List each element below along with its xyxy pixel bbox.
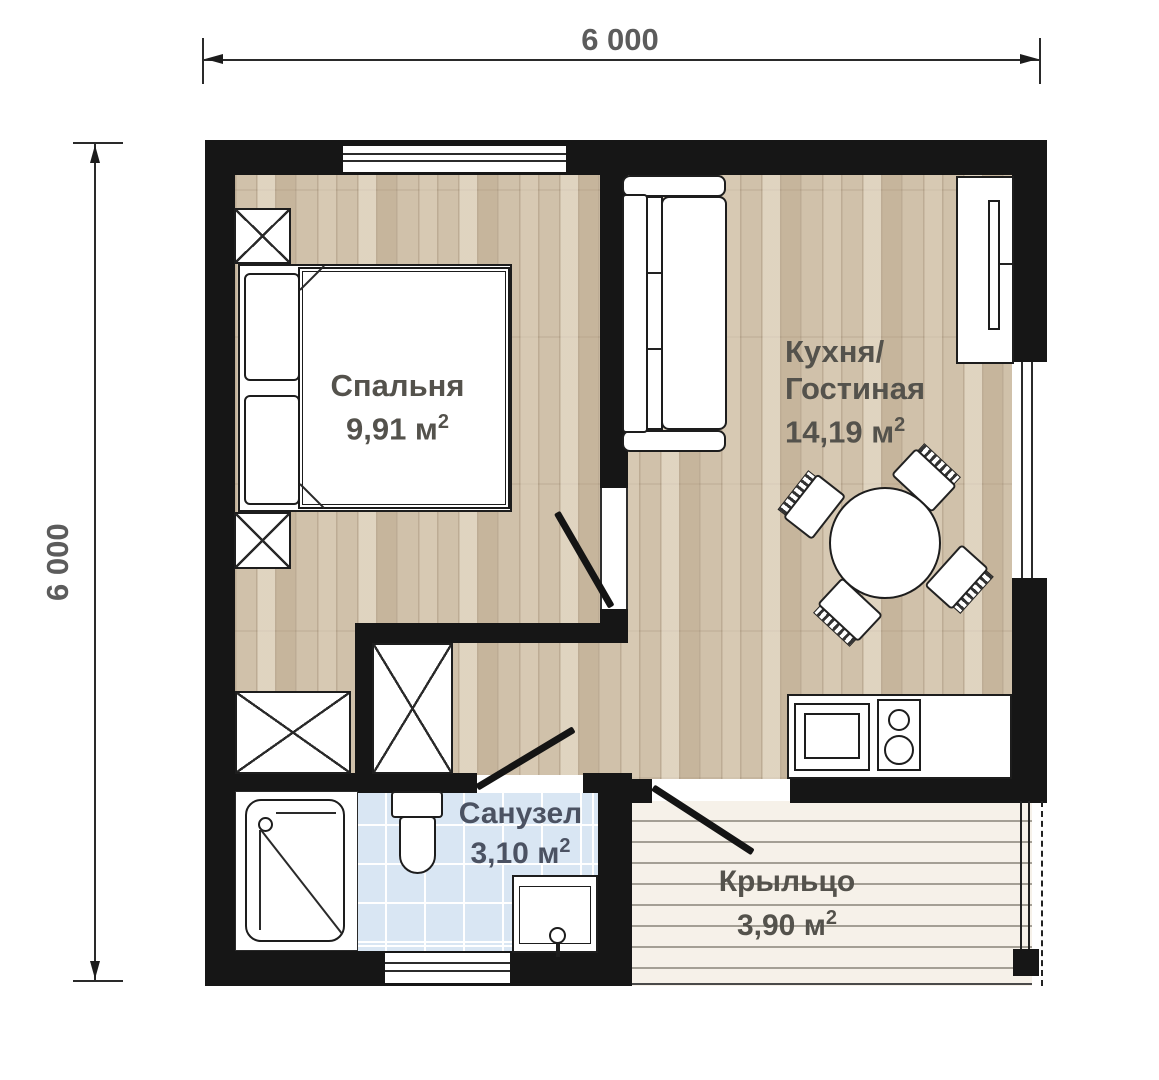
sofa-seat <box>661 196 727 430</box>
cooktop-burner-small <box>888 709 910 731</box>
porch-rail-double-line <box>1020 801 1030 951</box>
window-right-line-1 <box>1021 362 1023 578</box>
bathroom-label: Санузел 3,10 м2 <box>438 797 603 870</box>
porch-area: 3,90 м2 <box>698 900 876 944</box>
sofa-cushion-divider-1 <box>648 272 661 274</box>
tv-bracket <box>1000 263 1012 265</box>
dimension-top-arrow-left <box>205 54 223 64</box>
bedroom-area: 9,91 м2 <box>280 404 515 447</box>
sink-vanity <box>512 875 598 953</box>
bedroom-wardrobe <box>235 691 351 774</box>
sink-faucet-stem <box>556 943 560 957</box>
dimension-top-tick-left <box>202 38 204 84</box>
cooktop-burner-large <box>884 735 914 765</box>
sofa-backrest <box>622 194 648 433</box>
microwave <box>794 703 870 771</box>
bathroom-area: 3,10 м2 <box>438 830 603 870</box>
toilet-tank <box>391 791 443 818</box>
porch-post <box>1013 949 1039 976</box>
dimension-top-line <box>203 59 1040 61</box>
floor-plan-canvas: Спальня 9,91 м2 Кухня/ Гостиная 14,19 м2… <box>0 0 1159 1080</box>
sofa-armrest-bottom <box>622 430 726 452</box>
microwave-window <box>804 713 860 759</box>
sofa-cushion-divider-2 <box>648 348 661 350</box>
wall-porch-left <box>598 773 632 986</box>
tv <box>988 200 1000 330</box>
shower-bar <box>276 812 336 814</box>
window-bottom-line-2 <box>385 970 510 972</box>
window-top-line-1 <box>343 153 566 155</box>
kitchen-living-name-line2: Гостиная <box>785 370 1005 407</box>
bedroom-name: Спальня <box>280 367 515 404</box>
sofa <box>622 175 728 452</box>
wall-left <box>205 140 235 986</box>
dimension-left-tick-bottom <box>73 980 123 984</box>
dimension-left-arrow-up <box>90 145 100 163</box>
dimension-left-arrow-down <box>90 961 100 979</box>
window-bottom-line-1 <box>385 962 510 964</box>
dimension-top-label: 6 000 <box>400 22 840 58</box>
bathroom-name: Санузел <box>438 797 603 830</box>
dimension-top-tick-right <box>1039 38 1041 84</box>
dimension-left-label: 6 000 <box>40 462 78 662</box>
cooktop <box>877 699 921 771</box>
porch-label: Крыльцо 3,90 м2 <box>698 864 876 944</box>
toilet-bowl <box>399 816 436 874</box>
dimension-top-arrow-right <box>1020 54 1038 64</box>
bed-pillow-1 <box>244 273 300 381</box>
window-bottom <box>385 953 510 983</box>
window-right-line-2 <box>1031 362 1033 578</box>
toilet <box>391 791 443 878</box>
bedroom-label: Спальня 9,91 м2 <box>280 367 515 447</box>
sink-faucet <box>549 927 566 944</box>
kitchen-living-label: Кухня/ Гостиная 14,19 м2 <box>785 333 1005 450</box>
hall-cabinet <box>372 643 453 774</box>
dining-table <box>829 487 941 599</box>
shower-cabin <box>235 791 358 951</box>
wall-living-bottom-right <box>790 779 1012 803</box>
shower-rail-vertical <box>259 830 261 930</box>
wall-hall-left <box>355 623 372 793</box>
wall-hall-top <box>355 623 628 643</box>
porch-name: Крыльцо <box>698 864 876 900</box>
wall-living-bottom-left <box>628 779 652 803</box>
window-right <box>1012 362 1047 578</box>
nightstand-bottom <box>234 512 291 569</box>
window-top-line-2 <box>343 160 566 162</box>
kitchen-counter <box>787 694 1012 779</box>
porch-roof-overhang-dashed <box>1041 801 1043 986</box>
wall-bathroom-top-left <box>235 773 477 793</box>
wall-top <box>205 140 1047 175</box>
nightstand-top <box>234 208 291 264</box>
kitchen-living-area: 14,19 м2 <box>785 407 1005 450</box>
dimension-left-line <box>94 143 96 982</box>
window-top <box>343 146 566 172</box>
kitchen-living-name-line1: Кухня/ <box>785 333 1005 370</box>
porch-deck-edge <box>632 983 1032 985</box>
dimension-left-tick-top <box>73 142 123 144</box>
